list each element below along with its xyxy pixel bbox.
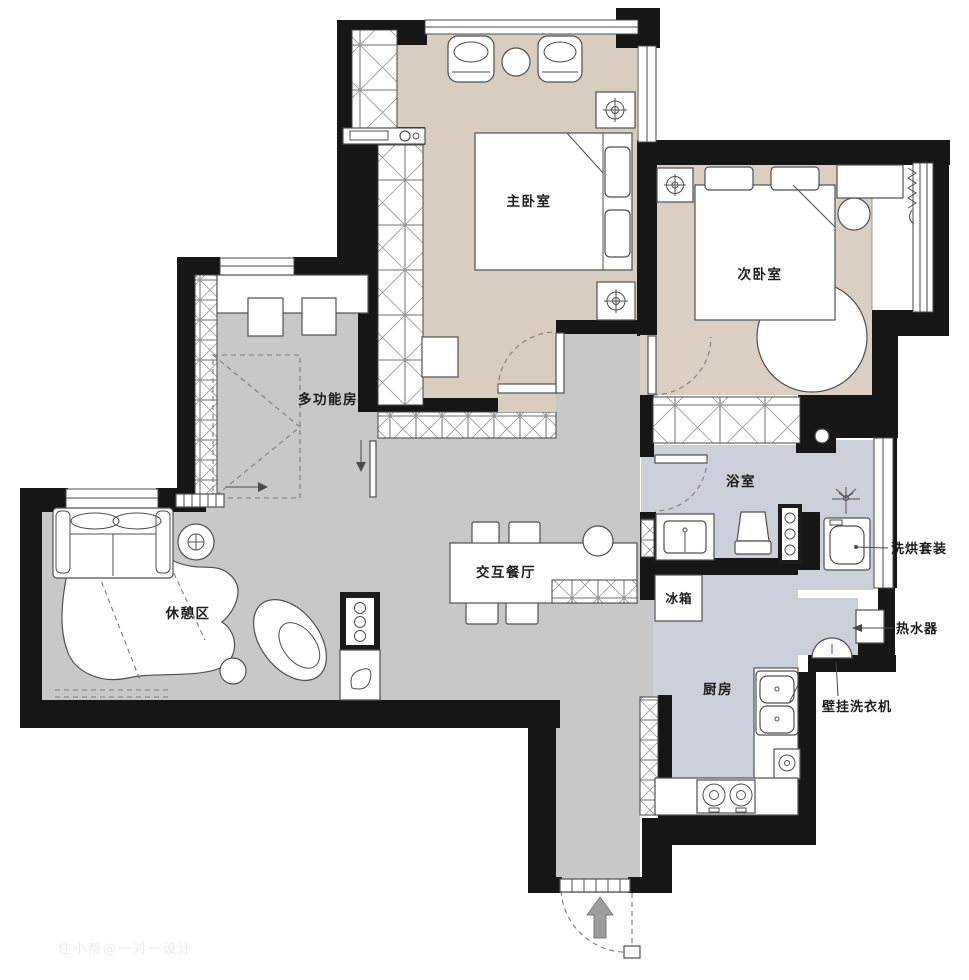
desk-icon [837,165,903,198]
double-sink-icon [756,671,798,735]
bed-icon [695,167,835,320]
desk-counter-icon [217,275,368,313]
label-dining: 交互餐厅 [476,564,536,581]
label-wall-mounted-washer: 壁挂洗衣机 [822,699,892,715]
label-master-bedroom: 主卧室 [507,193,552,210]
toilet-icon [735,512,771,554]
watermark: 住小帮@一对一设计 [58,938,193,957]
label-second-bedroom: 次卧室 [738,266,783,283]
nightstand-lamp-icon [596,92,635,128]
sofa-icon [53,508,173,578]
floor-plan-drawing: 主卧室 次卧室 多功能房 休憩区 交互餐厅 浴室 厨房 冰箱 洗烘套装 热水器 … [0,0,969,980]
threshold-icon [176,494,224,507]
pendant-icon [583,526,613,556]
floor-plan: 主卧室 次卧室 多功能房 休憩区 交互餐厅 浴室 厨房 冰箱 洗烘套装 热水器 … [0,0,969,980]
sink-icon [656,514,714,560]
armchair-icon [538,36,582,82]
nightstand-lamp-icon [597,282,635,320]
nightstand-lamp-icon [657,168,693,202]
entry-door-icon [560,879,640,958]
entry-arrow [587,897,613,938]
bed-icon [475,133,632,270]
fixture-icon [815,429,829,443]
ottoman-icon [220,658,246,684]
label-bathroom: 浴室 [726,473,756,490]
stove-icon [697,780,755,813]
label-fridge: 冰箱 [665,591,692,606]
label-kitchen: 厨房 [703,681,733,698]
label-washer-dryer: 洗烘套装 [891,541,947,557]
dresser-icon [422,337,458,377]
label-multi-function-room: 多功能房 [298,391,358,408]
stool-icon [302,298,336,335]
table-storage-icon [552,580,637,603]
stool-icon [838,198,870,230]
floor-lamp-icon [178,524,214,560]
armchair-icon [448,36,494,82]
stool-icon [248,298,283,336]
label-lounge: 休憩区 [165,605,211,622]
media-shelf-icon [340,592,380,700]
storage-column-icon [778,504,802,564]
washer-dryer-icon [824,518,870,570]
label-water-heater: 热水器 [896,621,938,637]
side-table-icon [502,48,530,76]
